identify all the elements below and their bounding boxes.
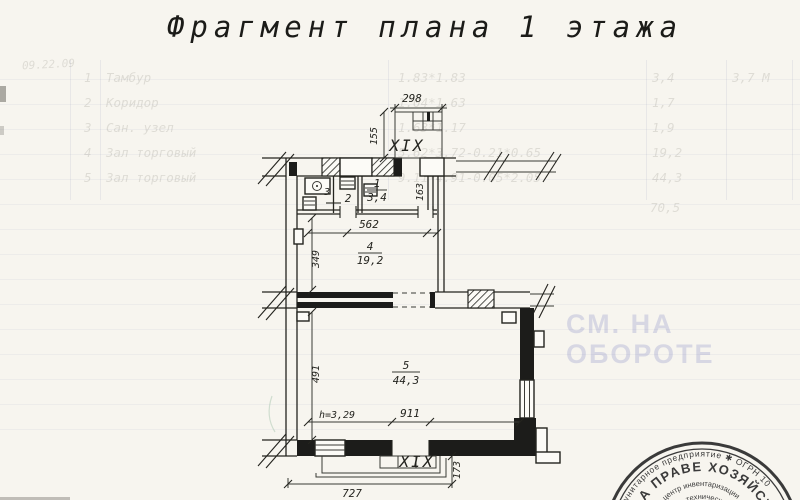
see-reverse-line2: ОБОРОТЕ	[566, 340, 736, 370]
top-wall	[286, 158, 456, 176]
dim-label: 298	[402, 92, 422, 105]
stair-label-top: XIX	[389, 136, 425, 155]
room-area: 19,2	[357, 254, 384, 267]
room-number: 3	[323, 187, 330, 198]
window	[340, 158, 372, 176]
dim-label: 163	[415, 183, 426, 201]
dimension-top-porch-depth: 155	[369, 108, 388, 162]
dim-label: 349	[311, 250, 322, 269]
dim-label: 911	[400, 407, 420, 420]
window	[315, 440, 345, 456]
wall-hatch	[322, 158, 340, 176]
wall-hatch	[468, 290, 494, 308]
corner-notch	[502, 312, 516, 323]
scan-green-artifact	[269, 396, 275, 432]
dim-label: 562	[359, 218, 379, 231]
room-number: 4	[367, 240, 374, 253]
window	[520, 380, 534, 418]
dim-label: 491	[311, 365, 322, 383]
scanned-plan-page: Фрагмент плана 1 этажа 09.22.09 1 Тамбур…	[0, 0, 800, 500]
see-reverse-note: СМ. НА ОБОРОТЕ	[566, 310, 736, 369]
height-note: h=3,29	[319, 410, 355, 421]
room-number: 1	[374, 177, 381, 190]
room-area: 3,4	[366, 191, 387, 204]
dim-label: 727	[342, 487, 362, 500]
window	[420, 158, 444, 176]
floor-plan-drawing: 298 155 XIX	[0, 0, 800, 500]
see-reverse-line1: СМ. НА	[566, 310, 736, 340]
room-area: 44,3	[393, 374, 420, 387]
stair-label-bottom: XIX	[399, 452, 435, 471]
radiator-icon	[340, 177, 355, 189]
dimension-room4-width: 562	[304, 218, 441, 237]
room-number: 5	[403, 359, 410, 372]
fixtures	[303, 177, 377, 210]
dim-label: 173	[452, 461, 463, 479]
middle-wall	[297, 290, 530, 308]
wall-hatch	[372, 158, 394, 176]
pilaster	[534, 331, 544, 347]
room-labels: 1 3,4 2 3 4 19,2 5 44,3	[323, 177, 420, 387]
dimension-top-porch-width: 298	[390, 92, 447, 112]
exterior-step	[536, 428, 547, 454]
room-number: 2	[345, 192, 352, 205]
exterior-step	[536, 452, 560, 463]
round-stamp: унитарное предприятие ✱ ОГРН 10 А ПРАВЕ …	[592, 428, 800, 500]
toilet-icon	[303, 197, 316, 210]
dim-label: 155	[369, 127, 380, 145]
